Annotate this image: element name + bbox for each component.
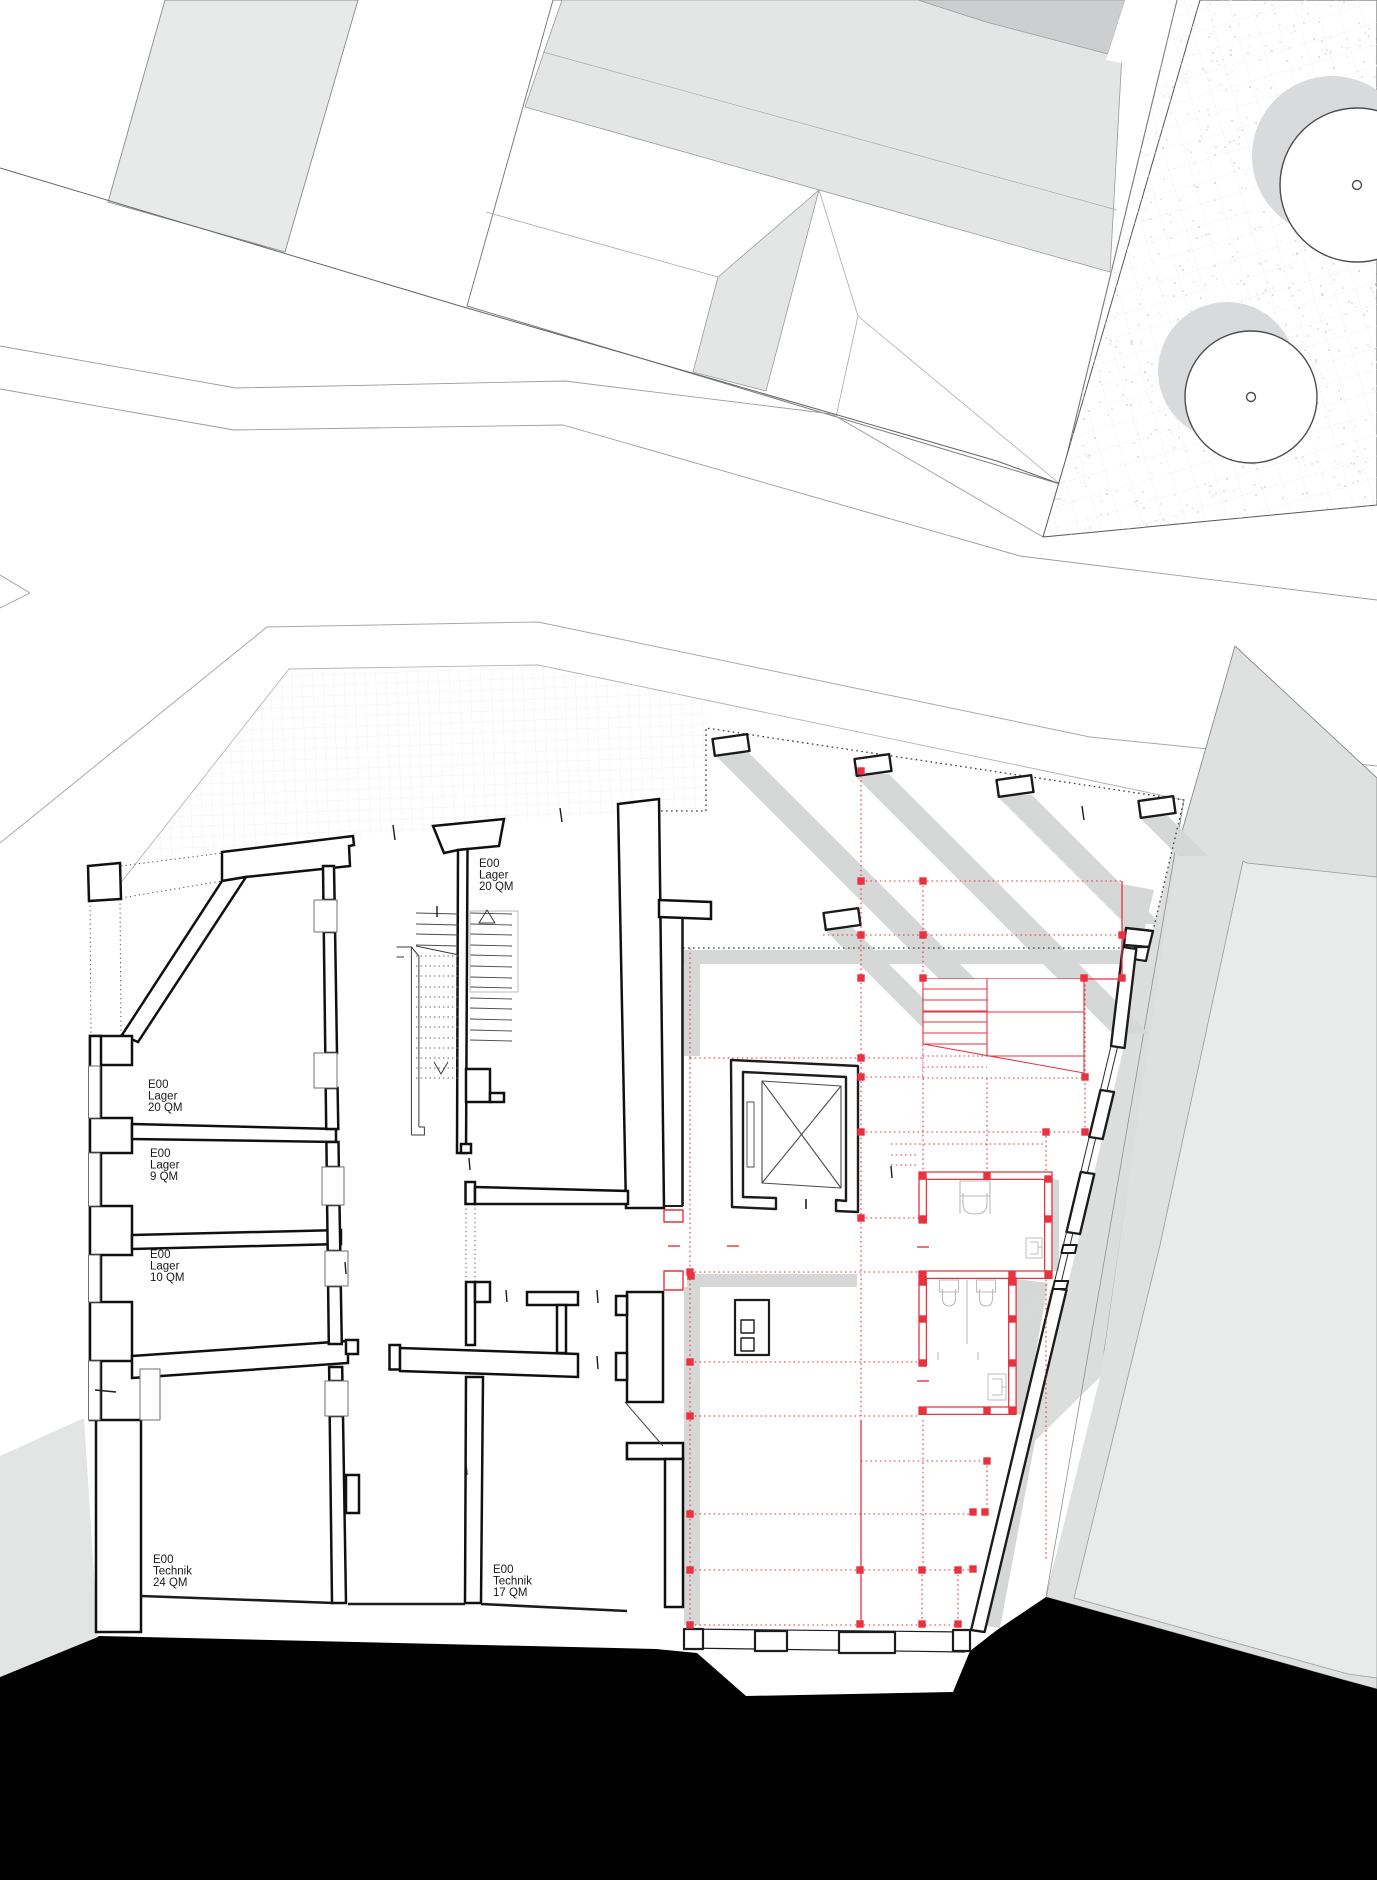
svg-text:Lager: Lager — [150, 1261, 180, 1273]
svg-text:E00: E00 — [479, 858, 499, 870]
svg-text:24 QM: 24 QM — [153, 1577, 188, 1589]
svg-text:E00: E00 — [150, 1148, 170, 1160]
svg-text:Lager: Lager — [150, 1160, 180, 1172]
svg-text:Technik: Technik — [493, 1576, 532, 1588]
svg-text:Lager: Lager — [479, 870, 509, 882]
svg-text:E00: E00 — [150, 1249, 170, 1261]
svg-text:20 QM: 20 QM — [479, 881, 514, 893]
svg-text:Lager: Lager — [148, 1091, 178, 1103]
svg-text:9 QM: 9 QM — [150, 1171, 178, 1183]
svg-text:E00: E00 — [493, 1564, 513, 1576]
svg-text:17 QM: 17 QM — [493, 1587, 528, 1599]
svg-text:20 QM: 20 QM — [148, 1102, 183, 1114]
svg-text:E00: E00 — [148, 1079, 168, 1091]
svg-text:Technik: Technik — [153, 1566, 192, 1578]
svg-text:10 QM: 10 QM — [150, 1272, 185, 1284]
svg-text:E00: E00 — [153, 1554, 173, 1566]
